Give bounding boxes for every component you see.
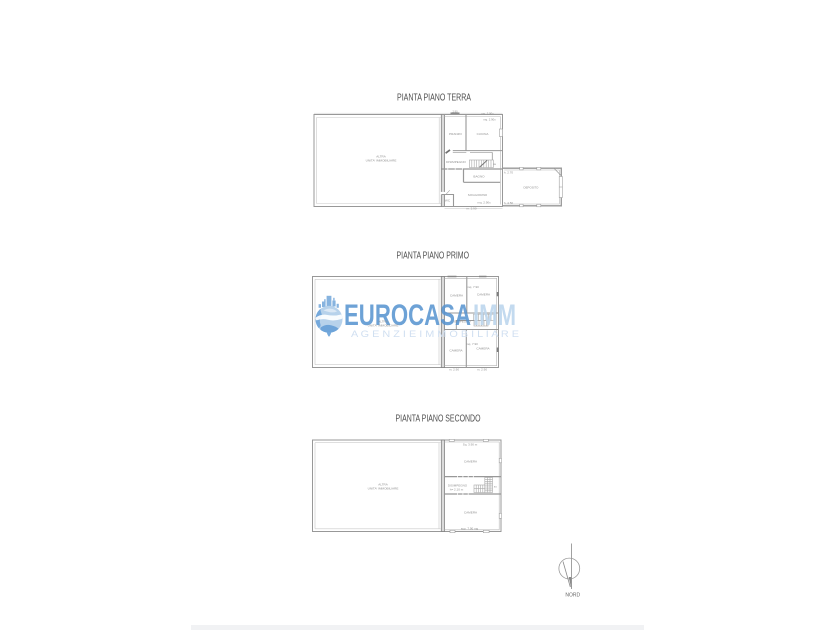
svg-text:PRANZO: PRANZO: [449, 132, 462, 136]
svg-text:h= 2.10 m: h= 2.10 m: [450, 488, 464, 492]
svg-text:h. 4.50: h. 4.50: [504, 201, 514, 205]
svg-text:mq. 2.90x: mq. 2.90x: [483, 118, 496, 122]
svg-text:WC: WC: [445, 199, 451, 203]
svg-text:EUROCASA: EUROCASA: [344, 299, 471, 332]
svg-text:PIANTA PIANO SECONDO: PIANTA PIANO SECONDO: [396, 413, 481, 424]
svg-text:SOGGIORNO: SOGGIORNO: [468, 193, 488, 197]
svg-text:Sq. 3.90 m: Sq. 3.90 m: [463, 442, 478, 446]
svg-text:mq. 2.90x: mq. 2.90x: [481, 111, 494, 115]
svg-text:CAMERA: CAMERA: [449, 349, 463, 353]
svg-text:su: su: [493, 162, 496, 166]
svg-text:UNITA' IMMOBILIARE: UNITA' IMMOBILIARE: [368, 487, 399, 491]
svg-text:mq. 2.90x: mq. 2.90x: [477, 201, 491, 205]
svg-text:2.90: 2.90: [452, 110, 458, 114]
svg-text:CAMERA: CAMERA: [477, 293, 491, 297]
svg-text:DEPOSITO: DEPOSITO: [524, 186, 540, 190]
svg-text:UNITA' IMMOBILIARE: UNITA' IMMOBILIARE: [366, 159, 397, 163]
svg-text:PIANTA PIANO PRIMO: PIANTA PIANO PRIMO: [397, 250, 470, 261]
svg-text:NORD: NORD: [565, 593, 580, 599]
svg-text:DISIMPEGNO: DISIMPEGNO: [446, 160, 466, 164]
svg-text:CAMERA: CAMERA: [476, 347, 490, 351]
svg-text:m. 2.90: m. 2.90: [466, 206, 476, 210]
svg-text:mq. 7.90: mq. 7.90: [467, 285, 479, 289]
svg-text:sup. 7.90 mq: sup. 7.90 mq: [461, 527, 479, 531]
svg-text:UNITA' IMMOBILIARE: UNITA' IMMOBILIARE: [368, 324, 399, 328]
svg-text:h. 2.70: h. 2.70: [504, 171, 514, 175]
svg-text:IMM: IMM: [473, 299, 516, 332]
svg-text:CAMERA: CAMERA: [450, 294, 464, 298]
svg-text:CAMERA: CAMERA: [464, 511, 478, 515]
svg-text:CUCINA: CUCINA: [477, 132, 490, 136]
svg-text:CAMERA: CAMERA: [464, 460, 478, 464]
svg-text:A G E N Z I E I M M O B I L: A G E N Z I E I M M O B I L I A R E: [351, 329, 519, 339]
svg-text:m. 2.90: m. 2.90: [477, 368, 487, 372]
svg-text:BAGNO: BAGNO: [473, 175, 485, 179]
svg-text:mq. 7.90: mq. 7.90: [466, 342, 478, 346]
svg-text:m. 2.90: m. 2.90: [449, 368, 459, 372]
svg-text:PIANTA PIANO TERRA: PIANTA PIANO TERRA: [397, 93, 471, 104]
